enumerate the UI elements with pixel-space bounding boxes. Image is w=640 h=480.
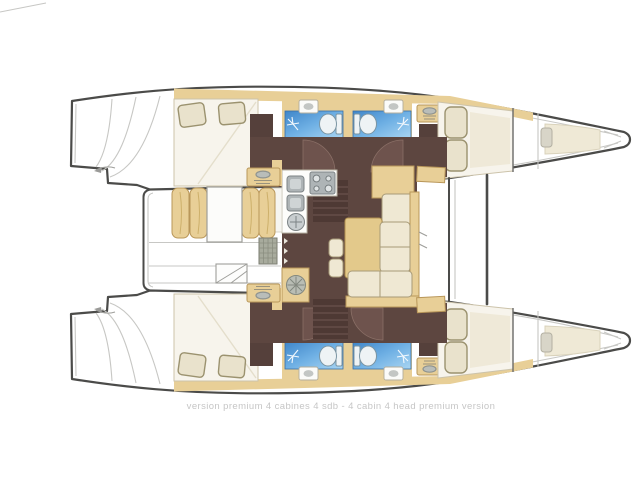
port-forward-head <box>353 111 411 138</box>
port-heads-block <box>282 98 412 138</box>
starboard-hull-steps <box>313 299 348 339</box>
washbasin-icon <box>423 366 436 372</box>
toilet-icon <box>320 114 337 134</box>
pillow <box>445 309 467 340</box>
forepeak-berth <box>545 326 600 356</box>
pillow <box>541 128 552 147</box>
chair-cushion <box>329 259 343 277</box>
washbasin-icon <box>423 108 436 114</box>
toilet-icon <box>320 346 337 366</box>
pillow <box>178 352 207 377</box>
pillow <box>445 140 467 171</box>
catamaran-floorplan-image: version premium 4 cabines 4 sdb - 4 cabi… <box>0 0 640 480</box>
toilet-icon <box>360 346 377 366</box>
forepeak-berth <box>545 124 600 154</box>
sofa-frame <box>346 296 419 307</box>
washbasin-icon <box>256 292 270 299</box>
pillow <box>218 102 246 125</box>
nav-seat-back <box>372 166 414 198</box>
cockpit-bench-port <box>172 188 207 238</box>
cockpit-corner-cabinet <box>247 284 280 302</box>
washbasin-icon <box>256 171 270 178</box>
plan-caption: version premium 4 cabines 4 sdb - 4 cabi… <box>0 401 640 412</box>
saloon-front-lockers <box>417 166 446 312</box>
cockpit-table <box>207 187 242 242</box>
port-aft-head <box>285 111 343 138</box>
pillow <box>541 333 552 352</box>
foredeck <box>449 175 487 304</box>
starboard-forward-head <box>353 342 411 369</box>
nav-seat-cushion <box>382 194 414 224</box>
starboard-heads-block <box>282 342 412 382</box>
pillow <box>445 107 467 138</box>
pillow <box>218 355 246 378</box>
photo-edge-artifact <box>0 3 46 12</box>
starboard-aft-head <box>285 342 343 369</box>
pillow <box>445 342 467 373</box>
dining-table <box>345 218 382 278</box>
cockpit-bench-starboard <box>242 188 275 238</box>
pillow <box>178 102 207 127</box>
cockpit-corner-cabinet <box>247 168 280 186</box>
toilet-icon <box>360 114 377 134</box>
cockpit-aft-edge <box>144 190 154 291</box>
chair-cushion <box>329 239 343 257</box>
